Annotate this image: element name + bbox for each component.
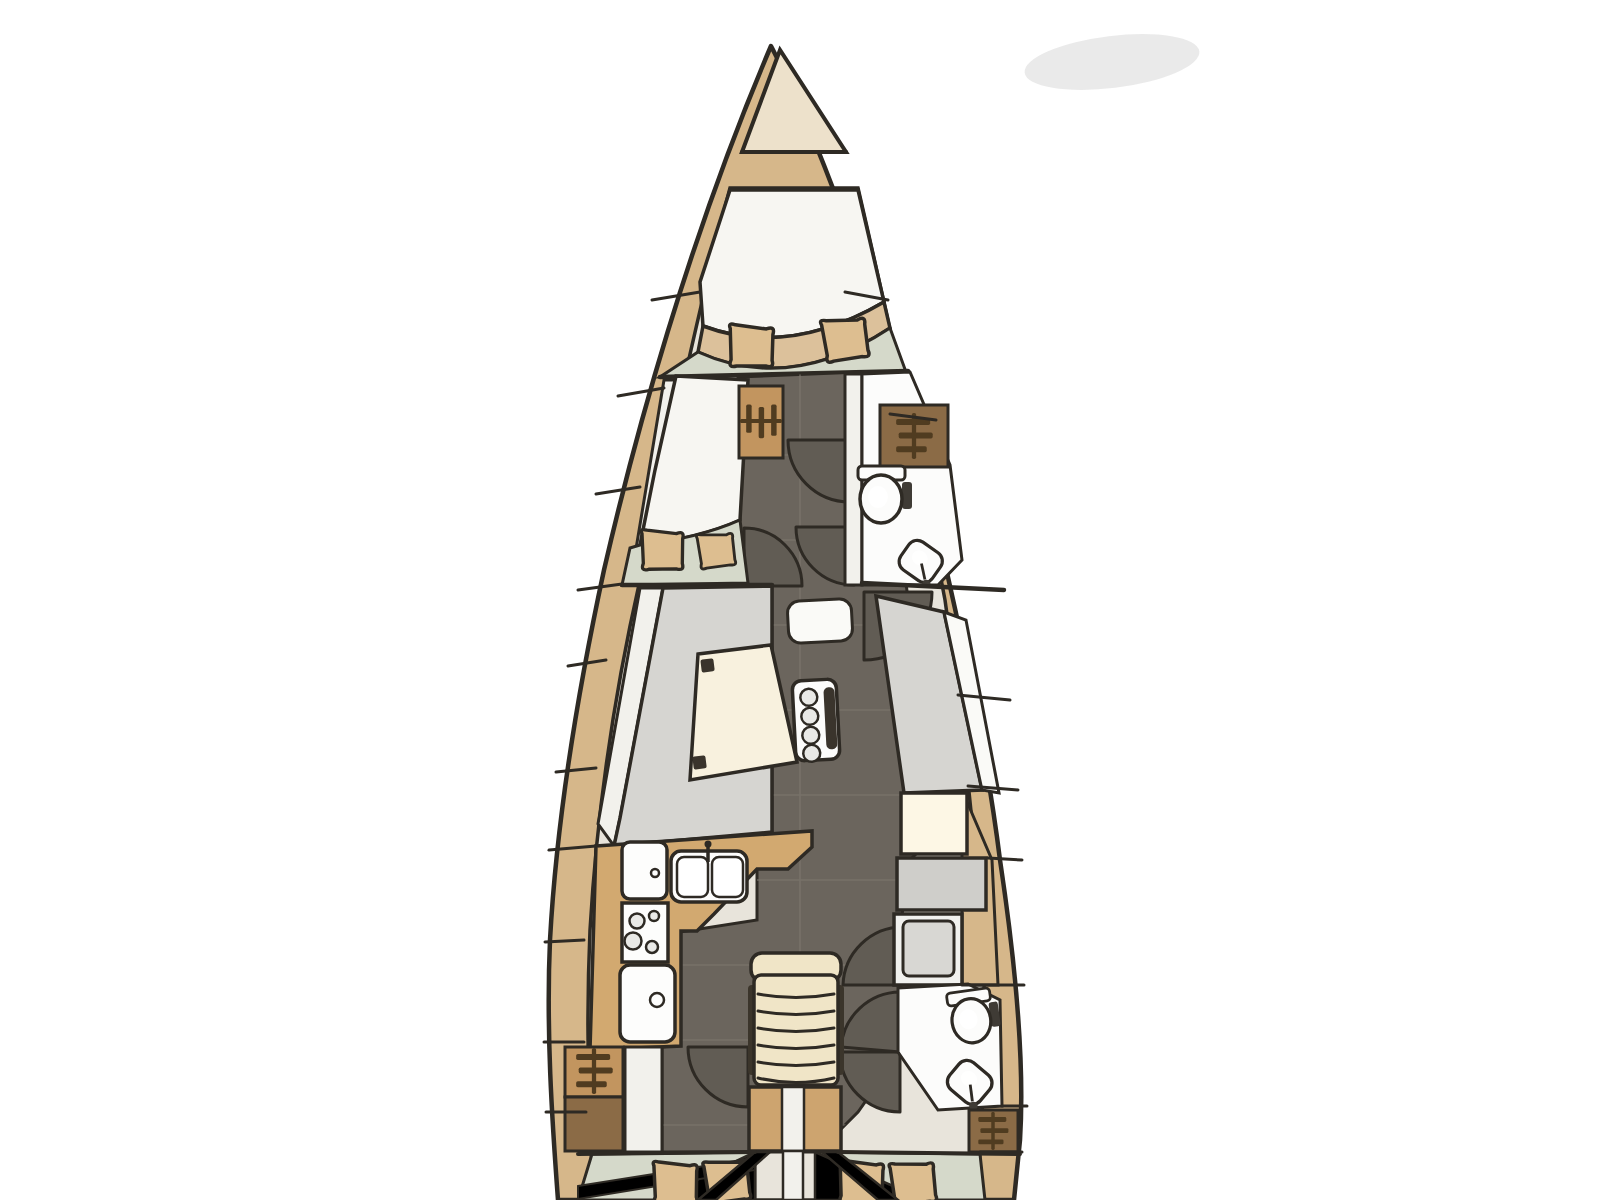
stove-icon: Stove with burners	[622, 903, 668, 962]
forward-head: Forward head with toilet and washbasin	[845, 372, 962, 590]
nav-cabinet-hatch	[903, 921, 954, 976]
nav-seat	[897, 858, 986, 910]
sailboat-floorplan: yacht-floorplan-diagram Anchor locker (b…	[0, 0, 1600, 1200]
pillow	[651, 1161, 699, 1200]
pillow	[727, 324, 775, 369]
double-sink-icon: Galley double sink with faucet	[671, 841, 747, 903]
salon-seat-panel	[787, 598, 853, 643]
companionway: Companionway steps Engine box under the …	[748, 953, 844, 1151]
fridge-icon	[622, 842, 667, 899]
galley-passage-strip	[625, 1047, 662, 1152]
chart-table	[901, 793, 967, 854]
locker-dark	[565, 1097, 623, 1151]
engine-compartment: Engine box under the steps	[749, 1087, 841, 1151]
pillow	[639, 529, 684, 571]
stern-center-strip	[783, 1151, 803, 1200]
pillow	[820, 317, 869, 363]
table-bracket	[692, 755, 706, 769]
pillow	[889, 1161, 937, 1200]
icebox-icon: Icebox	[620, 965, 675, 1042]
bottle-holder: Table bottle holder with four cup rings	[792, 679, 840, 763]
pillow	[696, 532, 736, 569]
floorplan-canvas: yacht-floorplan-diagram Anchor locker (b…	[0, 0, 1600, 1200]
table-bracket	[700, 658, 714, 672]
